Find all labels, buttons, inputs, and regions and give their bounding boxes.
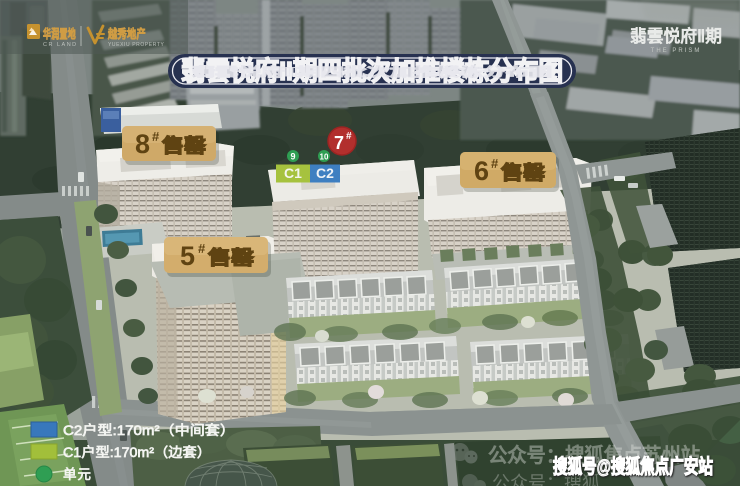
svg-text:越秀地产: 越秀地产 bbox=[107, 26, 146, 41]
svg-text:单元: 单元 bbox=[63, 467, 92, 482]
svg-text:售罄: 售罄 bbox=[500, 161, 545, 184]
svg-text:C1: C1 bbox=[284, 165, 302, 181]
svg-text:华润置地: 华润置地 bbox=[43, 26, 76, 41]
svg-text:售罄: 售罄 bbox=[161, 134, 206, 157]
svg-text:搜狐号@搜狐焦点广安站: 搜狐号@搜狐焦点广安站 bbox=[553, 455, 713, 478]
svg-text:#: # bbox=[198, 241, 206, 256]
svg-text:C2户型:170m²（中间套）: C2户型:170m²（中间套） bbox=[63, 422, 235, 438]
svg-text:THE PRISM: THE PRISM bbox=[651, 48, 702, 54]
svg-text:#: # bbox=[152, 129, 160, 144]
svg-text:7: 7 bbox=[334, 133, 344, 153]
svg-text:5: 5 bbox=[180, 241, 195, 271]
svg-text:6: 6 bbox=[474, 156, 489, 186]
svg-text:翡雲悦府Ⅱ期: 翡雲悦府Ⅱ期 bbox=[630, 27, 722, 46]
svg-text:YUEXIU PROPERTY: YUEXIU PROPERTY bbox=[108, 42, 164, 48]
svg-text:C1户型:170m²（边套）: C1户型:170m²（边套） bbox=[63, 444, 211, 460]
svg-text:#: # bbox=[491, 156, 499, 171]
svg-text:#: # bbox=[346, 131, 352, 142]
svg-text:10: 10 bbox=[320, 153, 329, 162]
svg-text:8: 8 bbox=[135, 129, 150, 159]
svg-text:CR LAND: CR LAND bbox=[43, 42, 78, 48]
svg-text:9: 9 bbox=[290, 152, 295, 162]
svg-text:C2: C2 bbox=[316, 165, 334, 181]
svg-text:售罄: 售罄 bbox=[207, 246, 254, 269]
svg-text:翡雲悦府II期四批次加推楼栋分布图: 翡雲悦府II期四批次加推楼栋分布图 bbox=[192, 64, 552, 79]
